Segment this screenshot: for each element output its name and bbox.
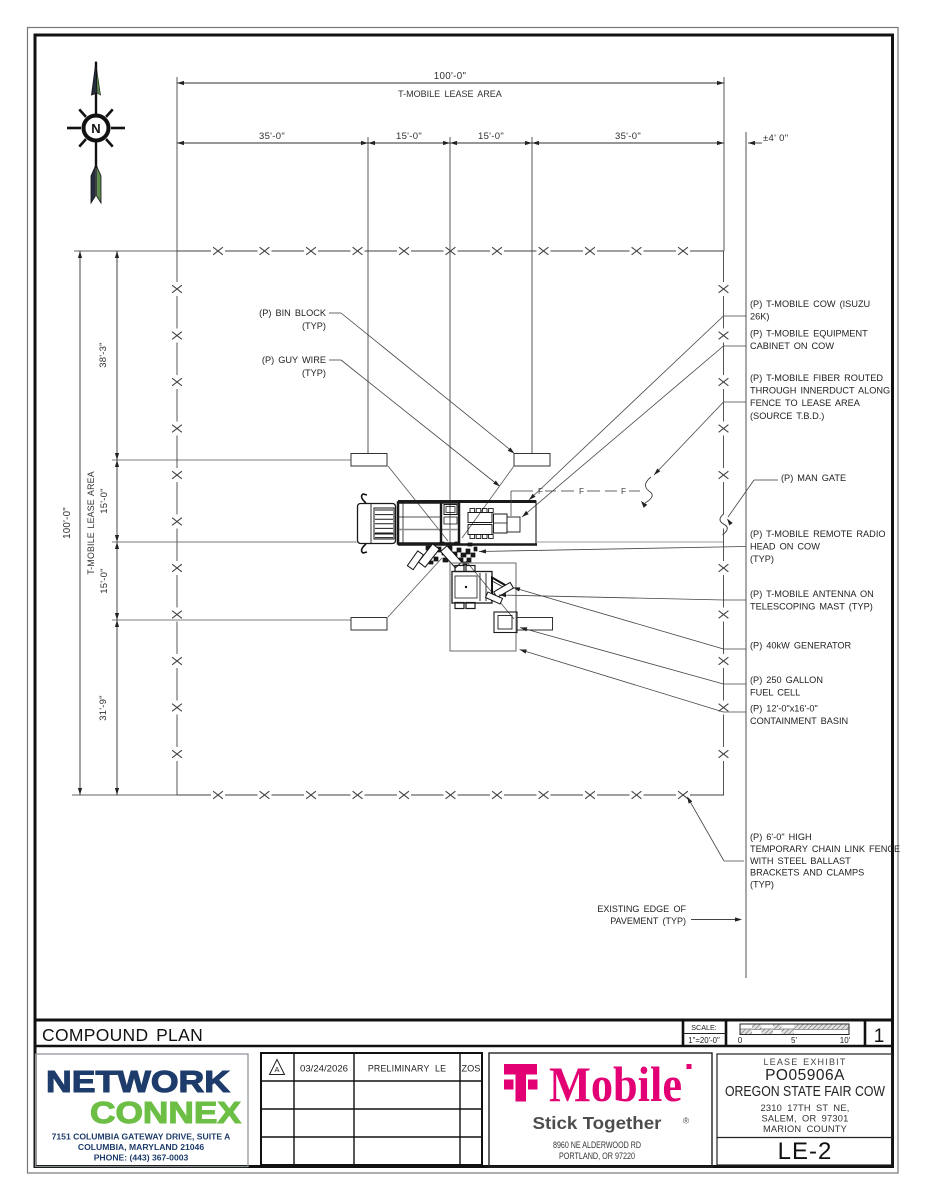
svg-text:OREGON STATE FAIR COW: OREGON STATE FAIR COW [725, 1084, 885, 1100]
svg-text:35'-0": 35'-0" [259, 131, 285, 142]
svg-text:Mobile: Mobile [549, 1056, 682, 1112]
svg-text:(P) GUY WIRE: (P) GUY WIRE [262, 355, 326, 365]
svg-text:WITH STEEL BALLAST: WITH STEEL BALLAST [750, 856, 851, 866]
svg-text:100'-0": 100'-0" [62, 507, 73, 539]
svg-text:(TYP): (TYP) [302, 368, 326, 378]
svg-text:Stick Together: Stick Together [533, 1113, 662, 1133]
svg-text:®: ® [683, 1116, 690, 1126]
svg-text:(TYP): (TYP) [750, 554, 774, 564]
svg-text:15'-0": 15'-0" [99, 568, 110, 593]
svg-text:CONTAINMENT BASIN: CONTAINMENT BASIN [750, 716, 848, 726]
svg-text:(P) 6'-0" HIGH: (P) 6'-0" HIGH [750, 832, 812, 842]
svg-text:PORTLAND, OR 97220: PORTLAND, OR 97220 [559, 1151, 635, 1161]
svg-text:LE-2: LE-2 [778, 1138, 833, 1165]
svg-text:8960 NE ALDERWOOD RD: 8960 NE ALDERWOOD RD [553, 1140, 641, 1150]
svg-text:F: F [579, 487, 584, 496]
svg-text:38'-3": 38'-3" [98, 342, 109, 367]
svg-text:PRELIMINARY LE: PRELIMINARY LE [368, 1064, 446, 1074]
svg-text:35'-0": 35'-0" [615, 131, 641, 142]
svg-text:15'-0": 15'-0" [396, 131, 422, 142]
svg-text:(P) 40kW GENERATOR: (P) 40kW GENERATOR [750, 641, 852, 651]
svg-text:(P) BIN BLOCK: (P) BIN BLOCK [259, 308, 327, 318]
svg-text:COMPOUND PLAN: COMPOUND PLAN [42, 1025, 203, 1045]
svg-text:EXISTING EDGE OF: EXISTING EDGE OF [597, 904, 686, 914]
svg-text:1"=20'-0": 1"=20'-0" [688, 1036, 720, 1045]
svg-text:7151 COLUMBIA GATEWAY DRIVE, S: 7151 COLUMBIA GATEWAY DRIVE, SUITE A [52, 1132, 231, 1142]
svg-text:31'-9": 31'-9" [98, 695, 109, 720]
svg-text:ZOS: ZOS [462, 1064, 481, 1074]
svg-text:CONNEX: CONNEX [90, 1095, 241, 1130]
svg-text:±4' 0": ±4' 0" [763, 133, 788, 144]
svg-text:HEAD ON COW: HEAD ON COW [750, 542, 820, 552]
svg-text:FUEL CELL: FUEL CELL [750, 688, 800, 698]
svg-text:SCALE:: SCALE: [691, 1023, 717, 1032]
svg-text:PAVEMENT (TYP): PAVEMENT (TYP) [610, 916, 686, 926]
svg-text:15'-0": 15'-0" [478, 131, 504, 142]
svg-text:MARION COUNTY: MARION COUNTY [763, 1124, 847, 1134]
svg-text:F: F [621, 487, 626, 496]
svg-text:(P) 12'-0"x16'-0": (P) 12'-0"x16'-0" [750, 704, 818, 714]
svg-text:(TYP): (TYP) [302, 321, 326, 331]
svg-text:1: 1 [874, 1026, 885, 1047]
svg-text:(P) T-MOBILE EQUIPMENT: (P) T-MOBILE EQUIPMENT [750, 329, 868, 339]
svg-text:03/24/2026: 03/24/2026 [300, 1064, 348, 1075]
svg-text:COLUMBIA, MARYLAND 21046: COLUMBIA, MARYLAND 21046 [78, 1142, 204, 1152]
svg-text:(P) MAN GATE: (P) MAN GATE [781, 473, 846, 483]
svg-text:5': 5' [791, 1036, 797, 1045]
svg-text:T-MOBILE LEASE AREA: T-MOBILE LEASE AREA [86, 471, 96, 575]
svg-text:TEMPORARY CHAIN LINK FENCE: TEMPORARY CHAIN LINK FENCE [750, 844, 900, 854]
svg-text:(TYP): (TYP) [750, 880, 774, 890]
svg-text:A: A [274, 1065, 279, 1074]
svg-text:T-MOBILE LEASE AREA: T-MOBILE LEASE AREA [398, 89, 502, 99]
svg-text:26K): 26K) [750, 312, 769, 322]
svg-text:10': 10' [840, 1036, 851, 1045]
svg-text:(SOURCE T.B.D.): (SOURCE T.B.D.) [750, 411, 824, 421]
svg-text:LEASE EXHIBIT: LEASE EXHIBIT [763, 1057, 846, 1067]
svg-text:(P) T-MOBILE FIBER ROUTED: (P) T-MOBILE FIBER ROUTED [750, 373, 883, 383]
svg-text:TELESCOPING MAST (TYP): TELESCOPING MAST (TYP) [750, 602, 873, 612]
svg-text:F: F [538, 487, 543, 496]
svg-text:15'-0": 15'-0" [99, 488, 110, 513]
svg-text:CABINET ON COW: CABINET ON COW [750, 341, 834, 351]
svg-text:PHONE: (443) 367-0003: PHONE: (443) 367-0003 [94, 1153, 189, 1163]
svg-text:FENCE TO LEASE AREA: FENCE TO LEASE AREA [750, 398, 861, 408]
svg-text:NETWORK: NETWORK [46, 1064, 231, 1099]
svg-text:(P) T-MOBILE COW (ISUZU: (P) T-MOBILE COW (ISUZU [750, 299, 870, 309]
svg-text:(P) T-MOBILE REMOTE RADIO: (P) T-MOBILE REMOTE RADIO [750, 529, 886, 539]
svg-text:SALEM, OR 97301: SALEM, OR 97301 [761, 1114, 848, 1124]
svg-text:(P) T-MOBILE ANTENNA ON: (P) T-MOBILE ANTENNA ON [750, 589, 874, 599]
svg-text:(P) 250 GALLON: (P) 250 GALLON [750, 675, 823, 685]
svg-text:0: 0 [738, 1036, 743, 1045]
svg-text:THROUGH INNERDUCT ALONG: THROUGH INNERDUCT ALONG [750, 386, 890, 396]
svg-text:PO05906A: PO05906A [765, 1067, 845, 1084]
svg-text:100'-0": 100'-0" [434, 71, 467, 82]
svg-text:BRACKETS AND CLAMPS: BRACKETS AND CLAMPS [750, 868, 864, 878]
svg-text:2310 17TH ST NE,: 2310 17TH ST NE, [760, 1103, 849, 1113]
svg-text:N: N [91, 121, 100, 136]
